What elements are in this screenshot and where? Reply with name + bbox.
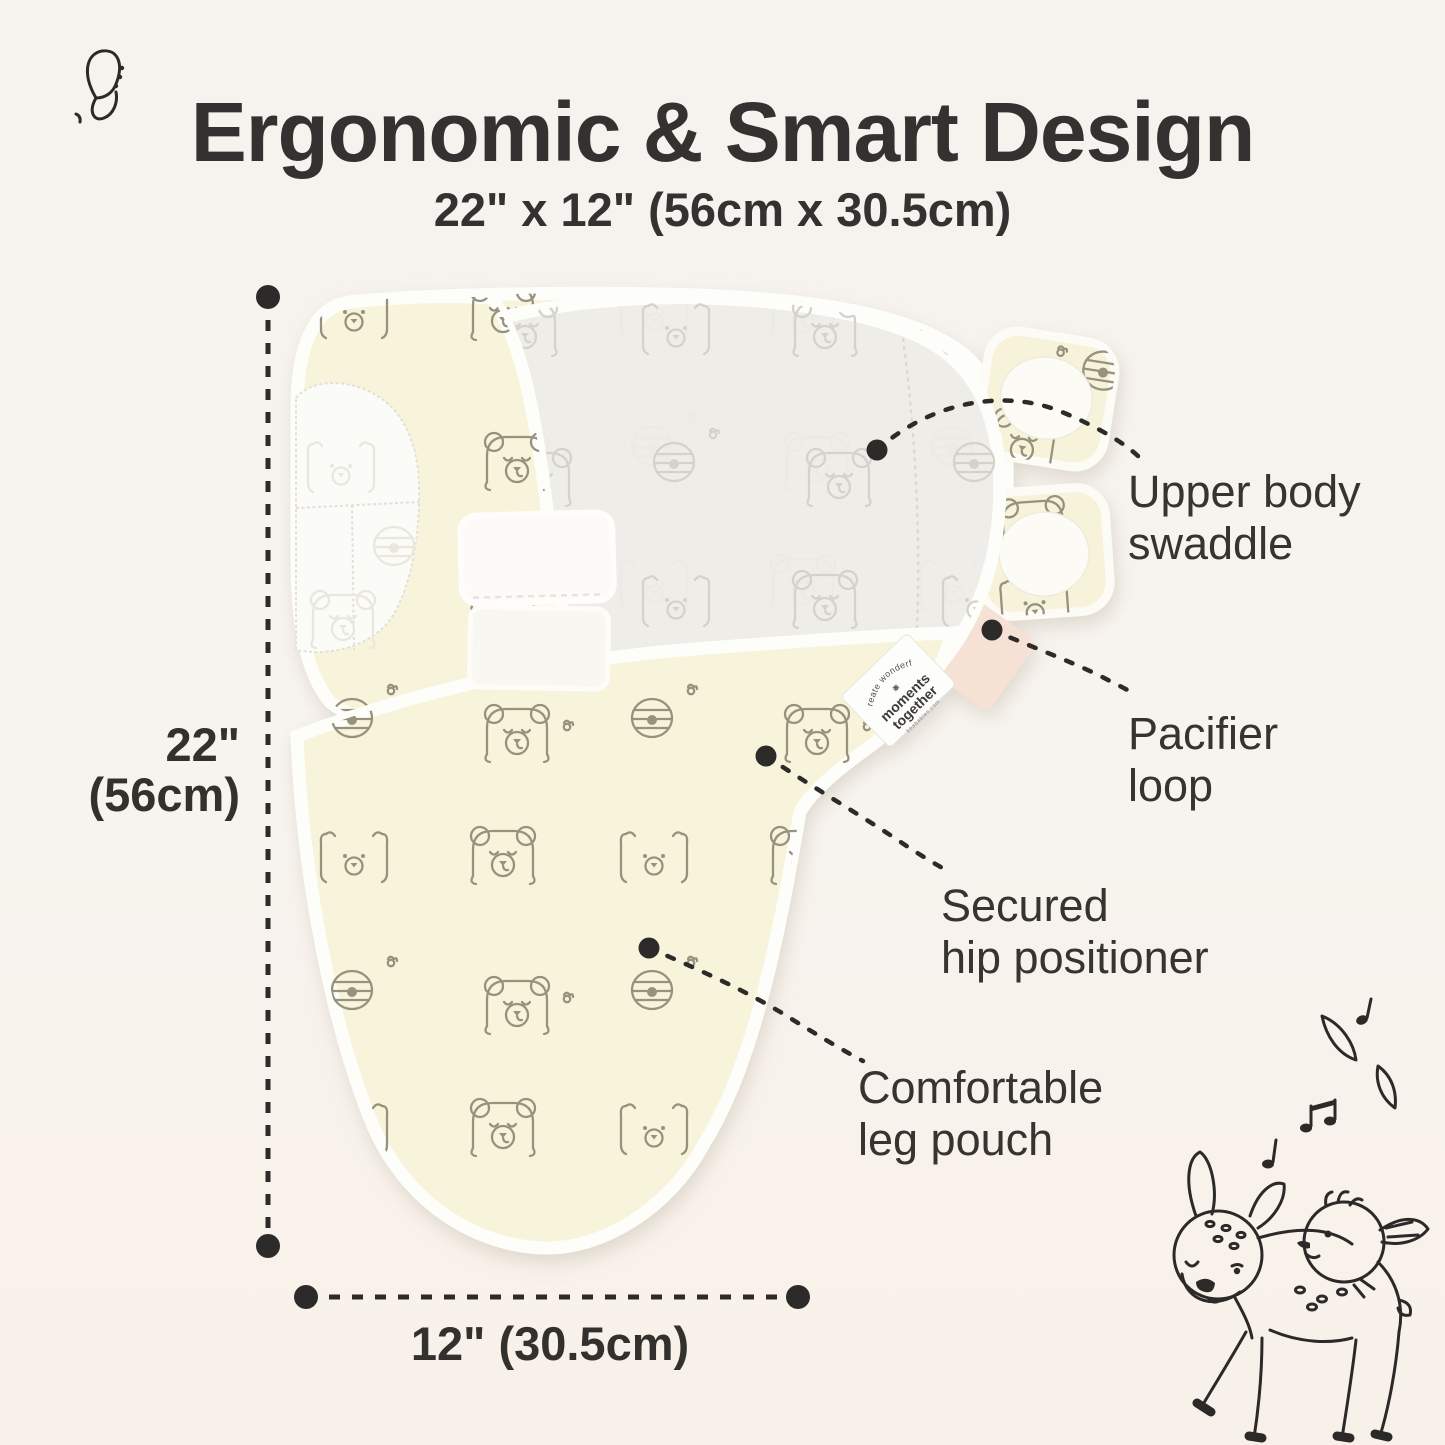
height-value: 22" [38, 720, 240, 770]
center-velcro-tab-upper [460, 512, 614, 604]
height-dimension-label: 22" (56cm) [38, 720, 240, 820]
callout-secured-hip-positioner: Secured hip positioner [941, 880, 1209, 984]
leg-pouch [297, 633, 952, 1248]
callout-line: Comfortable [858, 1062, 1103, 1114]
callout-upper-body-swaddle: Upper body swaddle [1128, 466, 1361, 570]
callout-pacifier-loop: Pacifier loop [1128, 708, 1278, 812]
center-velcro-tab-lower [469, 607, 608, 689]
infographic-page: { "page": { "background": "#f7f3ee", "te… [0, 0, 1445, 1445]
page-subtitle: 22" x 12" (56cm x 30.5cm) [0, 182, 1445, 237]
callout-line: hip positioner [941, 932, 1209, 984]
width-dimension-label: 12" (30.5cm) [300, 1316, 800, 1371]
callout-line: leg pouch [858, 1114, 1103, 1166]
callout-line: Upper body [1128, 466, 1361, 518]
music-notes-icon [1262, 999, 1395, 1169]
width-dimension-line [294, 1285, 810, 1309]
height-dimension-line [256, 285, 280, 1258]
callout-line: Secured [941, 880, 1209, 932]
callout-line: loop [1128, 760, 1278, 812]
page-title: Ergonomic & Smart Design [0, 84, 1445, 181]
height-metric: (56cm) [38, 770, 240, 820]
deer-and-bird-illustration [1174, 1152, 1428, 1438]
callout-comfortable-leg-pouch: Comfortable leg pouch [858, 1062, 1103, 1166]
callout-line: Pacifier [1128, 708, 1278, 760]
callout-line: swaddle [1128, 518, 1361, 570]
